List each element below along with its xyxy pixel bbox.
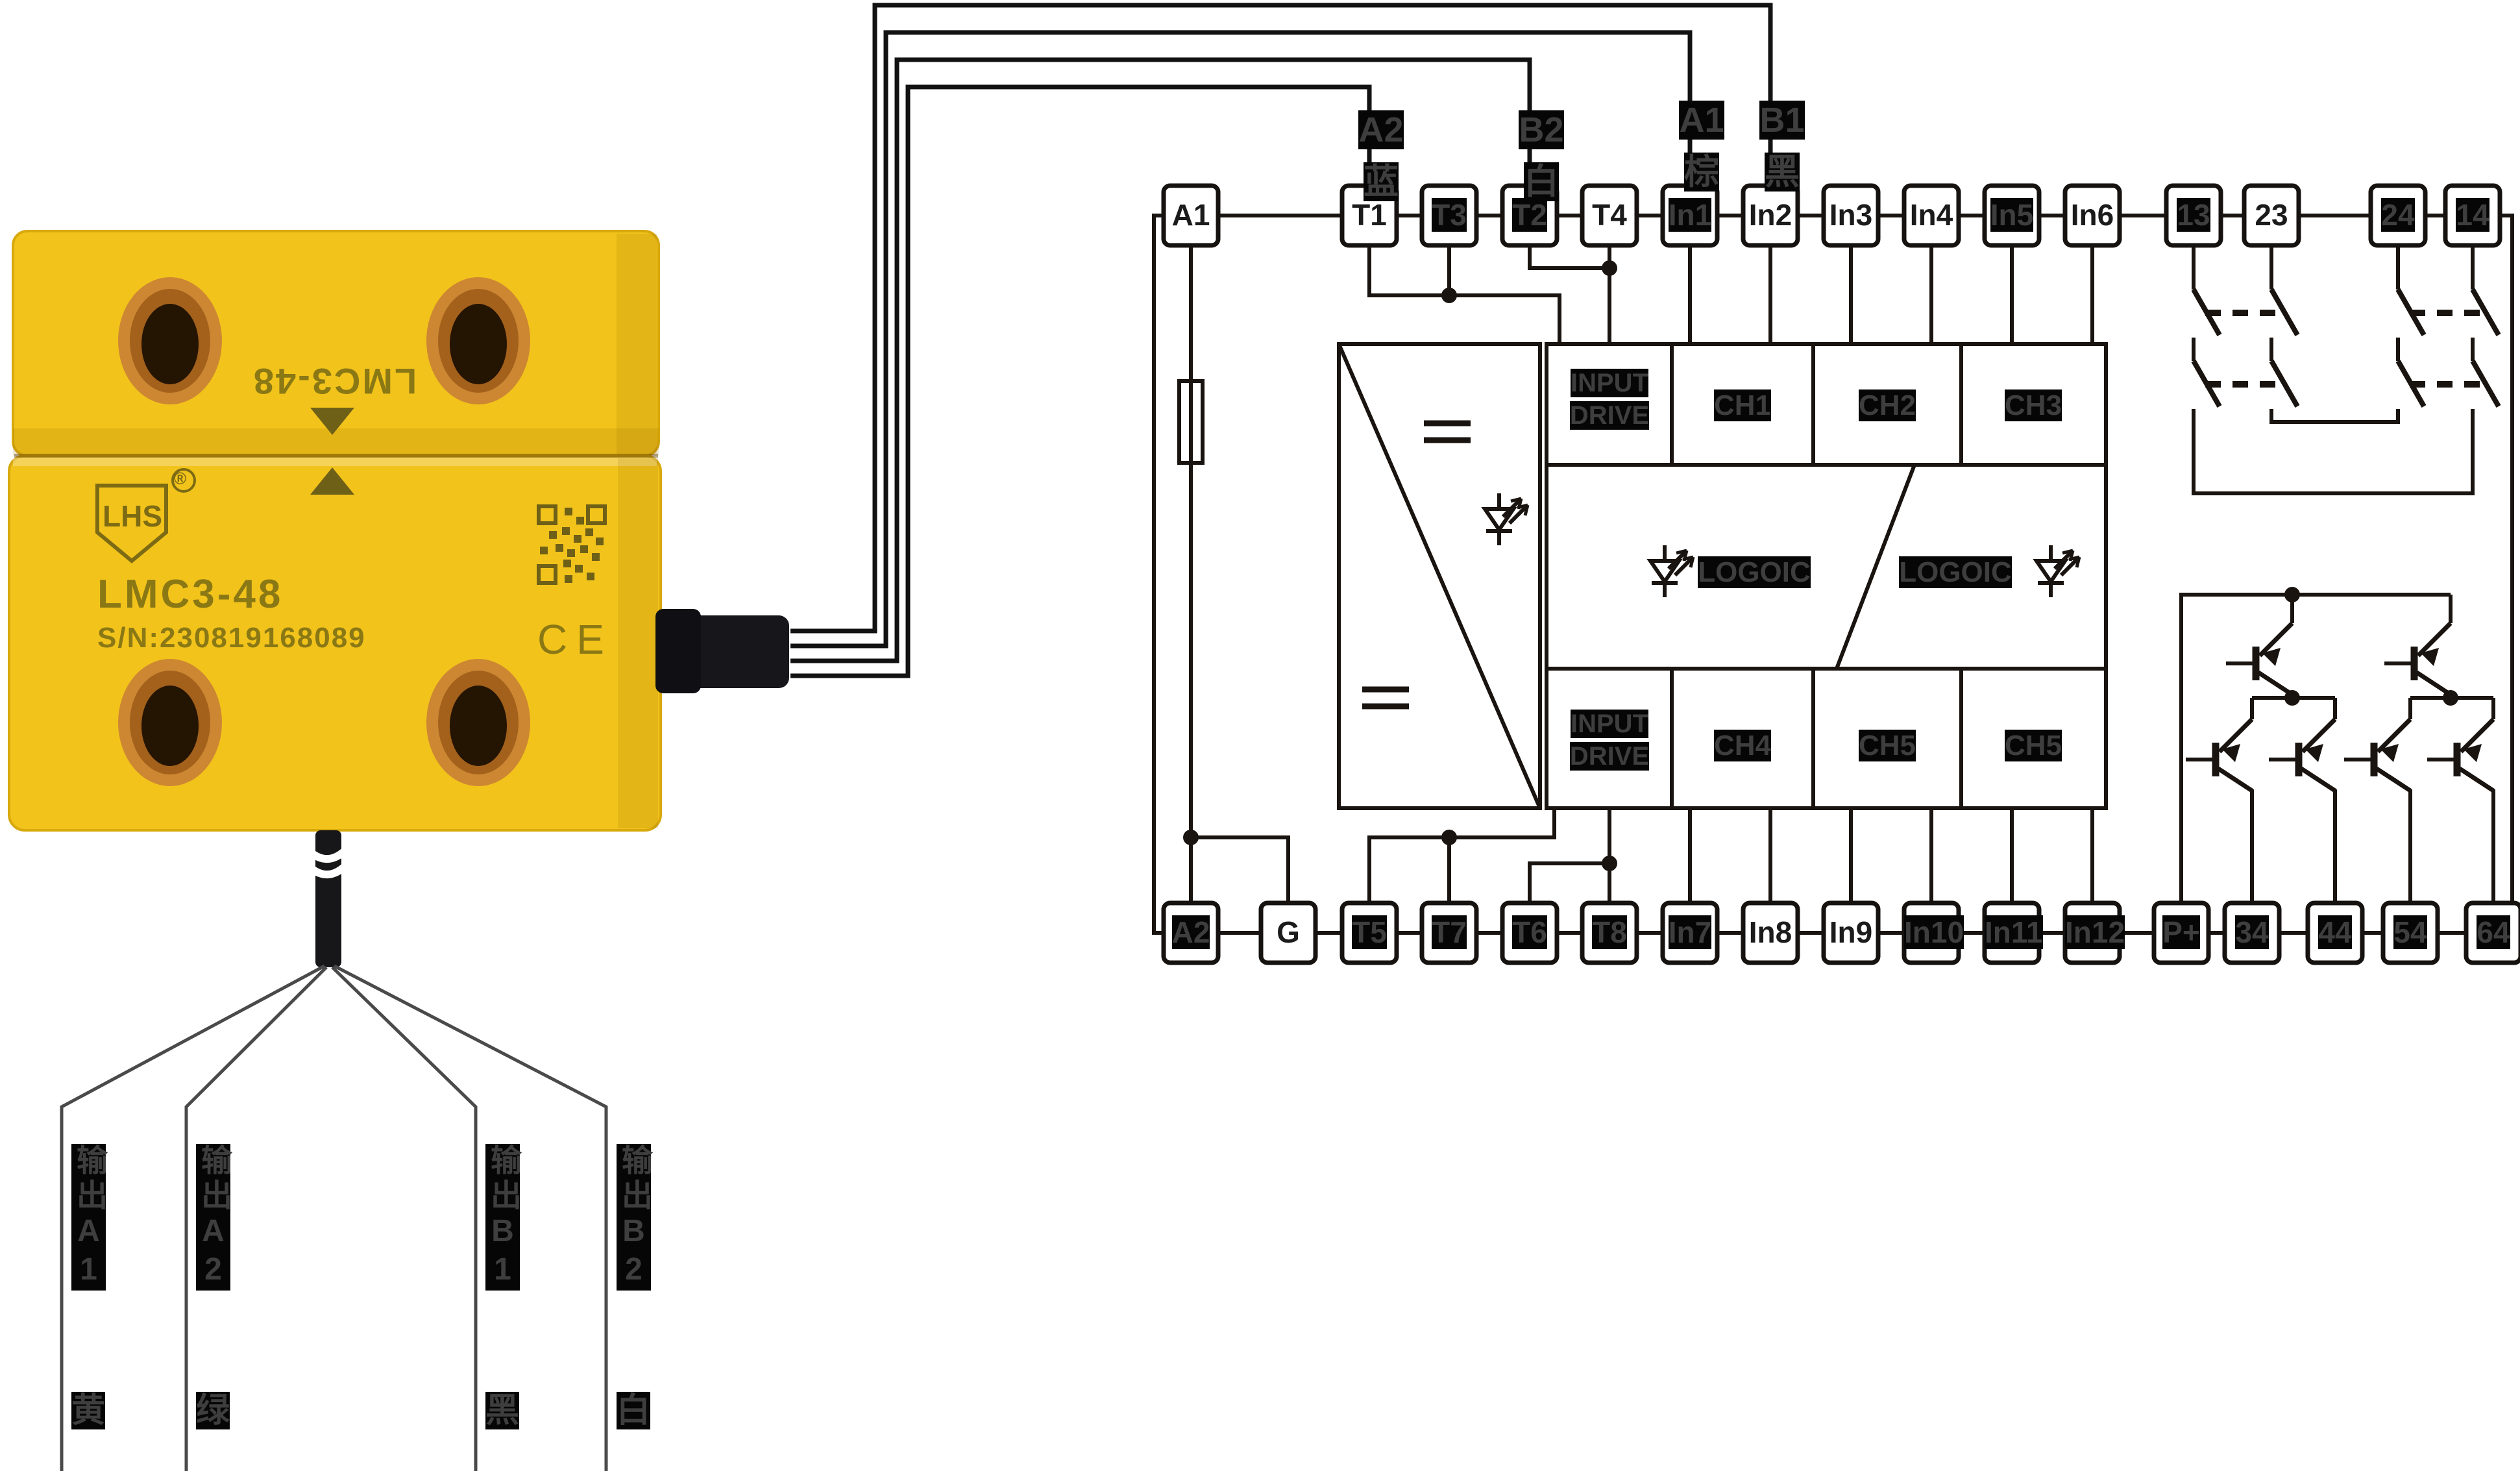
terminal-text: In9 [1829,915,1872,949]
wire-terminal-id: B1 [1759,101,1804,140]
terminal-text: In2 [1749,198,1792,232]
terminal-label-G: G [1261,912,1315,952]
terminal-text: A1 [1172,198,1210,232]
terminal-text: In8 [1749,915,1792,949]
output-transistors [2186,623,2493,791]
terminal-text: In4 [1910,198,1953,232]
output-wire-color-black: 黑 [485,1383,519,1431]
terminal-label-34: 34 [2225,912,2279,952]
output-wire-color-green: 绿 [196,1383,230,1431]
terminal-text: T4 [1592,198,1627,232]
terminal-text: T8 [1592,915,1627,949]
block-text: LOGOIC [1899,556,2012,588]
terminal-text: 34 [2235,915,2268,949]
terminal-text: 44 [2318,915,2351,949]
block-text: CH5 [2005,730,2062,761]
wiring-diagram-page: LMC3-48 LHS ® LMC3-48 S/N:230819168089 C… [0,0,2520,1471]
terminal-label-14: 14 [2445,195,2500,235]
terminal-text: In3 [1829,198,1872,232]
block-text: INPUT DRIVE [1570,710,1649,771]
contact-link-dashed [2205,313,2481,384]
terminal-text: In10 [1904,915,1964,949]
ce-mark: CE [537,615,613,663]
output-label-text: 输出B1 [485,1144,520,1291]
body-edge-shade [618,458,658,828]
wire-label-B1-black: B1 黑 [1756,94,1808,198]
terminal-label-In3: In3 [1824,195,1878,235]
brand-logo-text: LHS [103,499,162,534]
block-label-logic-right: LOGOIC [1894,555,2017,590]
device-model-label: LMC3-48 [97,571,283,617]
actuator-bottom-shade [13,428,659,456]
logic-row-block [1547,465,2106,669]
block-text: CH1 [1714,389,1771,421]
mounting-hole [118,659,222,786]
terminal-text: G [1277,915,1300,949]
block-text: INPUT DRIVE [1570,369,1649,430]
device-serial-label: S/N:230819168089 [97,622,366,654]
output-color-char: 白 [617,1392,650,1429]
terminal-label-54: 54 [2383,912,2438,952]
terminal-text: T6 [1512,915,1547,949]
terminal-text: 13 [2177,198,2210,232]
terminal-label-13: 13 [2166,195,2221,235]
wire-terminal-id: A1 [1679,101,1724,140]
terminal-text: A2 [1172,915,1210,949]
terminal-text: In5 [1990,198,2033,232]
terminal-label-In4: In4 [1904,195,1959,235]
relay-contact-blades [2194,290,2499,406]
block-text: CH5 [1859,730,1916,761]
actuator-edge-shade [617,234,657,454]
wire-color-char: 黑 [1765,153,1800,192]
output-wire-label-B2: 输出B2 [615,1144,652,1291]
block-label-ch1: CH1 [1698,388,1787,423]
terminal-text: In1 [1669,198,1711,232]
block-label-ch3: CH3 [1989,388,2077,423]
terminal-text: 24 [2381,198,2414,232]
wire-label-A2-blue: A2 蓝 [1355,104,1407,208]
terminal-text: P+ [2162,915,2200,949]
terminal-text: In6 [2071,198,2114,232]
output-wire-color-white: 白 [617,1383,650,1431]
terminal-label-In11: In11 [1985,912,2039,952]
terminal-text: In11 [1985,915,2043,949]
output-color-char: 黄 [71,1392,105,1429]
terminal-label-T7: T7 [1422,912,1476,952]
terminal-label-In8: In8 [1743,912,1798,952]
block-text: CH3 [2005,389,2062,421]
terminal-label-A2: A2 [1164,912,1218,952]
terminal-label-64: 64 [2466,912,2520,952]
terminal-text: T1 [1352,198,1387,232]
output-wire-color-yellow: 黄 [71,1383,105,1431]
terminal-label-T2: T2 [1502,195,1557,235]
output-wire-label-A2: 输出A2 [195,1144,231,1291]
terminal-text: T7 [1432,915,1467,949]
terminal-label-T3: T3 [1422,195,1476,235]
terminal-label-T4: T4 [1582,195,1637,235]
cable-connector [655,609,789,693]
output-label-text: 输出A1 [71,1144,106,1291]
wire-color-char: 棕 [1684,153,1719,192]
block-label-ch5: CH5 [1843,728,1931,763]
registered-mark: ® [174,469,186,489]
terminal-label-44: 44 [2308,912,2362,952]
terminal-label-In6: In6 [2065,195,2120,235]
schematic [1154,216,2512,933]
diagram-graphics [0,0,2520,1471]
terminal-label-24: 24 [2371,195,2425,235]
terminal-label-In1: In1 [1663,195,1717,235]
wire-label-A1-brown: A1 棕 [1676,94,1728,198]
terminal-text: T5 [1352,915,1387,949]
terminal-label-A1: A1 [1164,195,1218,235]
terminal-text: In7 [1669,915,1711,949]
output-cable [312,830,345,967]
block-text: CH2 [1859,389,1916,421]
wire-terminal-id: A2 [1358,110,1403,149]
terminal-text: 23 [2255,198,2288,232]
terminal-text: T3 [1432,198,1467,232]
output-color-char: 绿 [196,1392,230,1429]
terminal-label-In9: In9 [1824,912,1878,952]
block-label-logic-left: LOGOIC [1693,555,1816,590]
terminal-label-T6: T6 [1502,912,1557,952]
mounting-hole [426,277,530,404]
terminal-label-In7: In7 [1663,912,1717,952]
wire-terminal-id: B2 [1519,110,1563,149]
terminal-text: 64 [2477,915,2510,949]
output-label-text: 输出A2 [196,1144,230,1291]
terminal-text: T2 [1512,198,1547,232]
block-label-input-drive-bottom: INPUT DRIVE [1554,708,1665,773]
block-text: LOGOIC [1698,556,1811,588]
output-wire-fanout [62,966,606,1471]
block-label-ch2: CH2 [1843,388,1931,423]
output-label-text: 输出B2 [617,1144,651,1291]
terminal-text: In12 [2065,915,2125,949]
output-wire-label-A1: 输出A1 [70,1144,106,1291]
body-top-highlight [13,457,657,466]
output-wire-label-B1: 输出B1 [484,1144,520,1291]
block-text: CH4 [1714,730,1771,761]
terminal-label-23: 23 [2244,195,2299,235]
terminal-label-In10: In10 [1904,912,1959,952]
terminal-text: 54 [2393,915,2427,949]
terminal-label-T5: T5 [1342,912,1397,952]
block-label-ch4: CH4 [1698,728,1787,763]
output-color-char: 黑 [485,1392,519,1429]
block-label-ch6: CH5 [1989,728,2077,763]
terminal-text: 14 [2456,198,2489,232]
terminal-label-T1: T1 [1342,195,1397,235]
terminal-label-In2: In2 [1743,195,1798,235]
mounting-hole [118,277,222,404]
terminal-label-T8: T8 [1582,912,1637,952]
wire-label-B2-white: B2 白 [1515,104,1567,208]
mounting-hole [426,659,530,786]
terminal-label-P+: P+ [2154,912,2208,952]
device-model-top-label: LMC3-48 [247,360,422,402]
terminal-label-In5: In5 [1985,195,2039,235]
block-label-input-drive-top: INPUT DRIVE [1554,367,1665,432]
terminal-label-In12: In12 [2065,912,2120,952]
